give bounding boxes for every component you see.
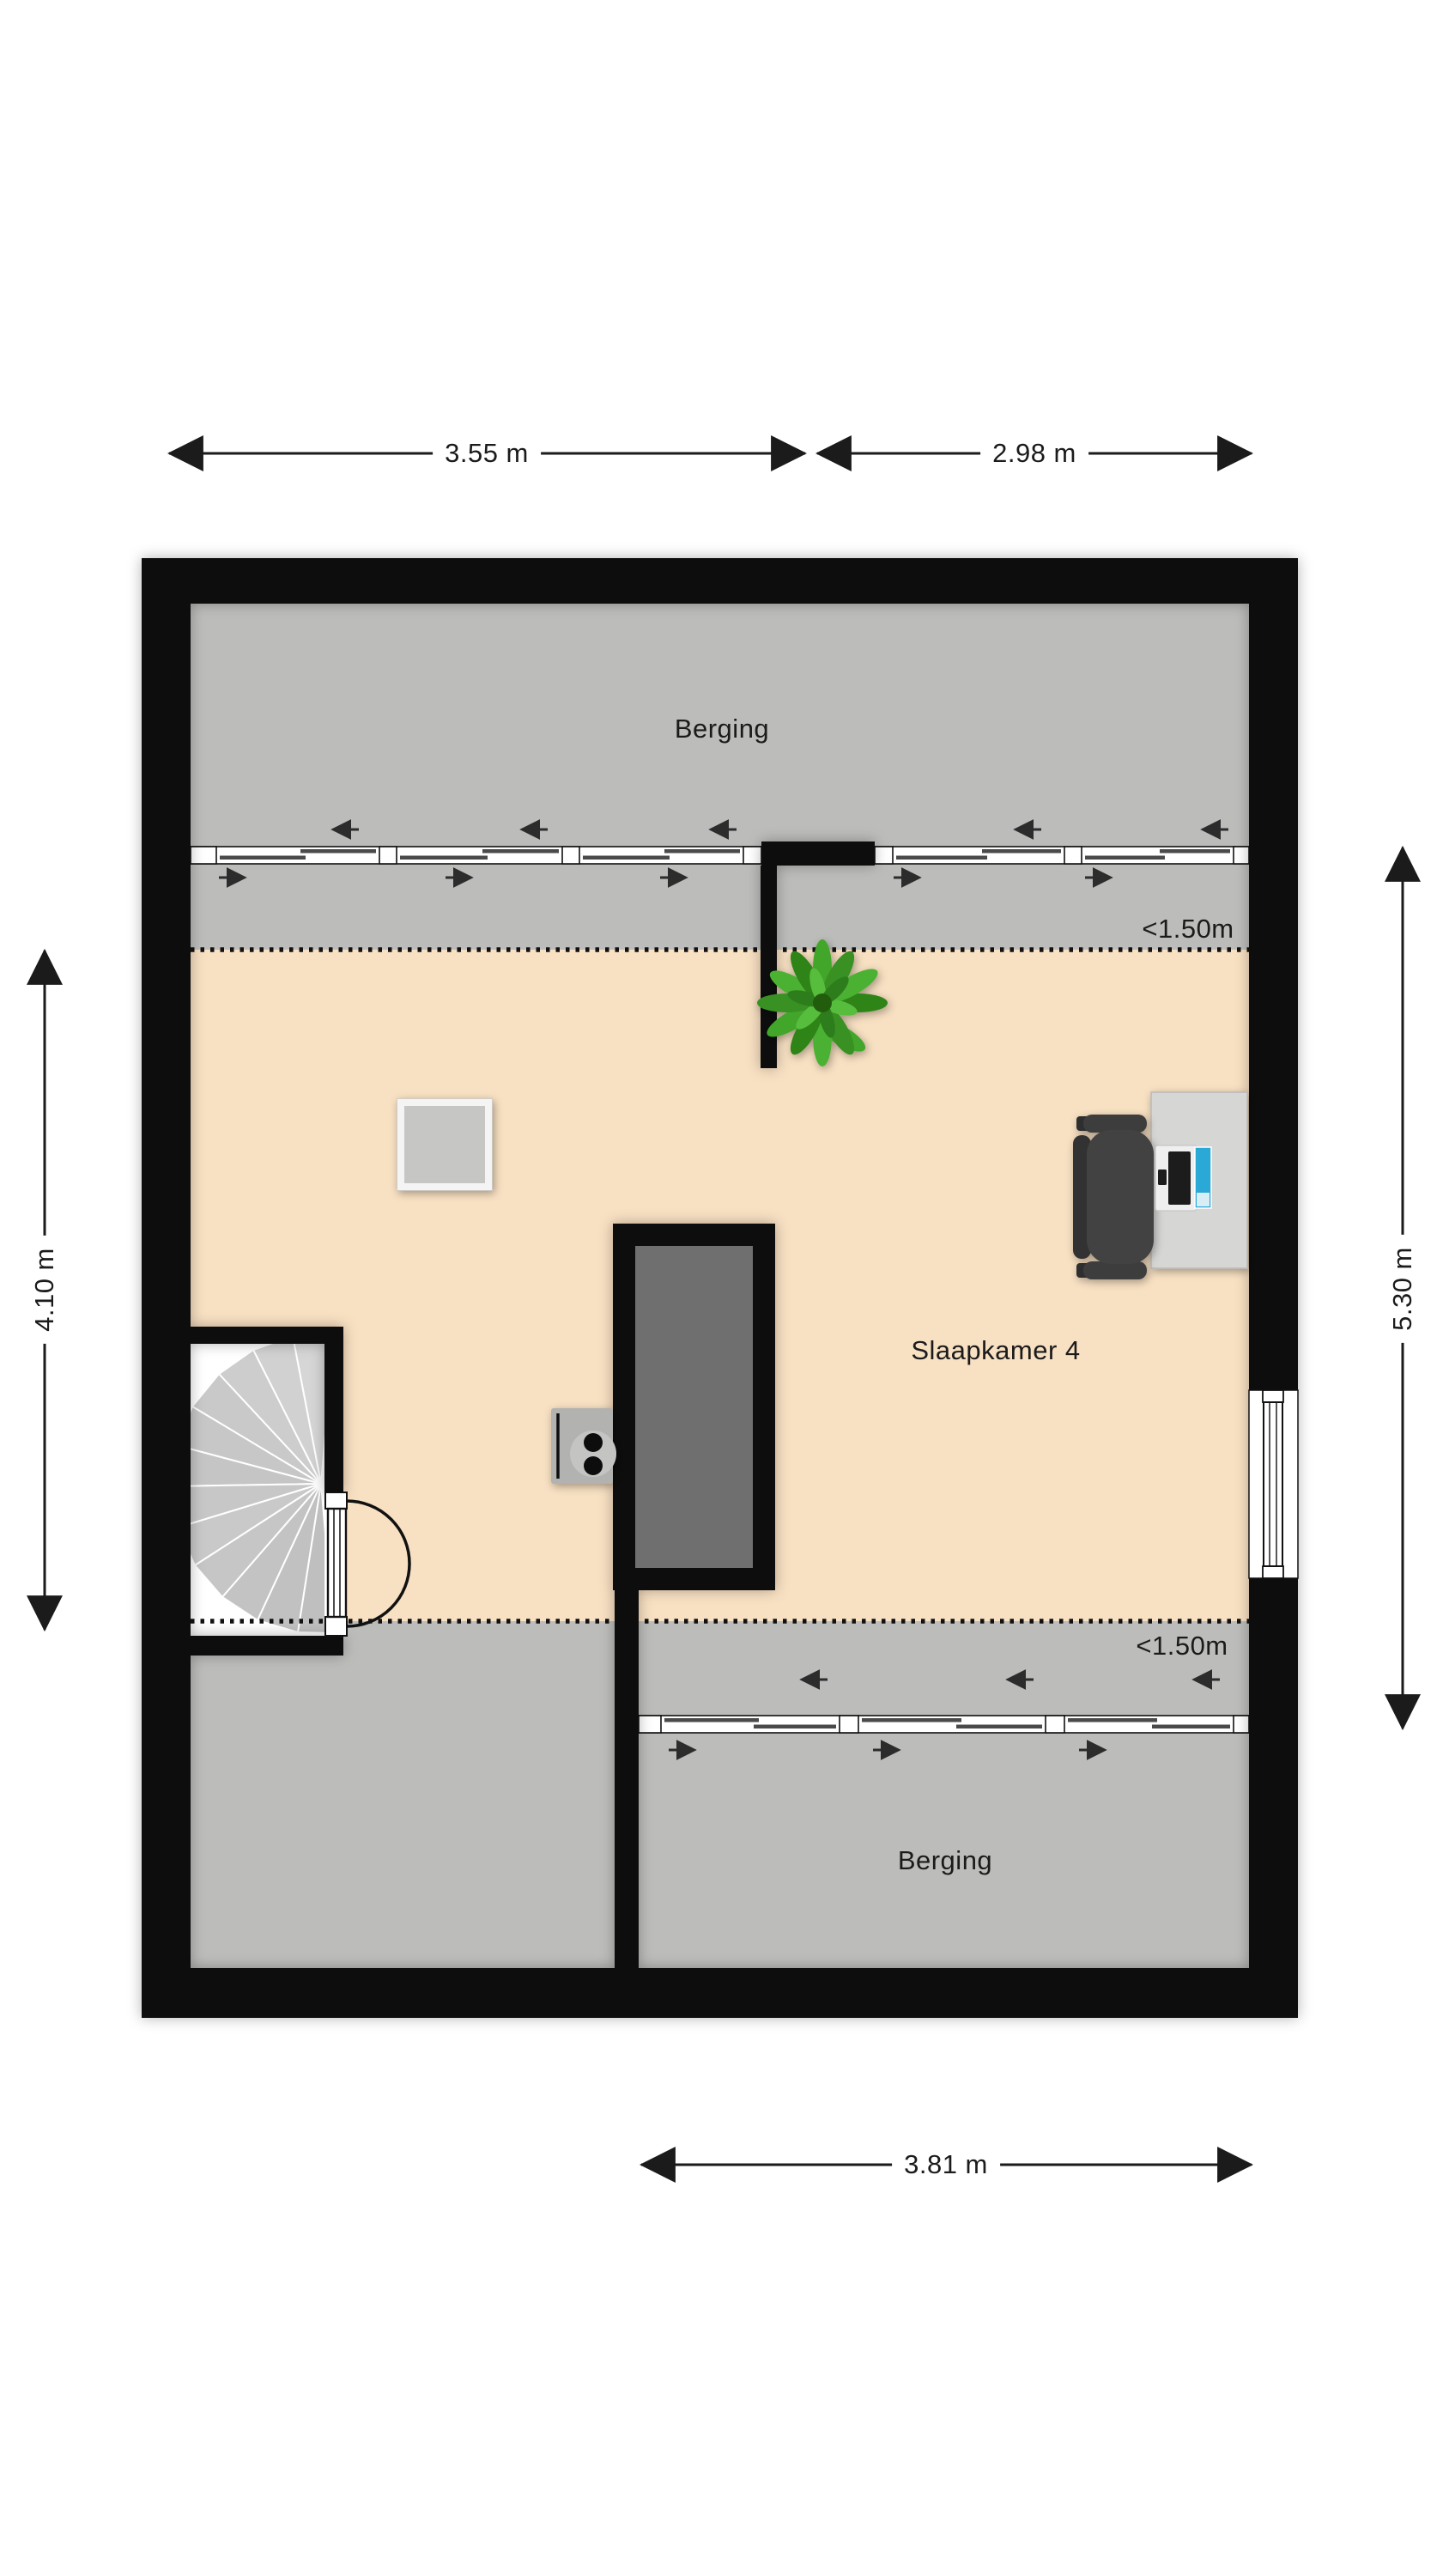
outer-wall-top: [142, 558, 1298, 604]
storage-floor-bottom-right: [639, 1621, 1249, 1969]
dimension-label-bottom: 3.81 m: [892, 2147, 1000, 2183]
storage-floor-bottom-left: [191, 1621, 615, 1969]
height-label-top: <1.50m: [1142, 914, 1234, 945]
storage-floor-top: [191, 604, 1249, 950]
floorplan-drawing: [0, 0, 1449, 2576]
partition-wall-bottom: [615, 1590, 639, 1969]
radiator-icon: [551, 1408, 616, 1484]
height-label-bottom: <1.50m: [1136, 1631, 1228, 1662]
stair-wall-top: [187, 1327, 343, 1344]
office-chair-icon: [1073, 1115, 1154, 1279]
window-row-top: [191, 847, 1249, 864]
window-row-bottom: [639, 1716, 1249, 1733]
floorplan-page: 3.55 m 2.98 m 4.10 m 5.30 m 3.81 m Bergi…: [0, 0, 1449, 2576]
door-leaf: [328, 1509, 346, 1617]
dimension-label-top-left: 3.55 m: [433, 435, 541, 471]
floor-void: [635, 1246, 753, 1568]
window-row-pier: [761, 841, 875, 866]
spiral-staircase: [171, 1334, 334, 1636]
outer-wall-right: [1249, 558, 1298, 2018]
dimension-label-right: 5.30 m: [1385, 1235, 1421, 1343]
room-label-storage-top: Berging: [675, 714, 769, 744]
dimension-label-left: 4.10 m: [27, 1236, 63, 1344]
skylight-icon: [397, 1099, 492, 1190]
dimension-label-top-right: 2.98 m: [980, 435, 1088, 471]
monitor-icon: [1195, 1147, 1211, 1208]
laptop-icon: [1155, 1145, 1197, 1211]
room-label-storage-bottom: Berging: [898, 1845, 992, 1876]
stair-wall-right: [324, 1344, 343, 1494]
room-label-bedroom: Slaapkamer 4: [911, 1335, 1080, 1366]
outer-wall-left: [142, 558, 191, 2018]
partition-wall-top: [761, 866, 777, 1068]
outer-wall-bottom: [142, 1968, 1298, 2018]
stair-wall-bottom: [187, 1636, 343, 1656]
exterior-window: [1249, 1390, 1298, 1578]
